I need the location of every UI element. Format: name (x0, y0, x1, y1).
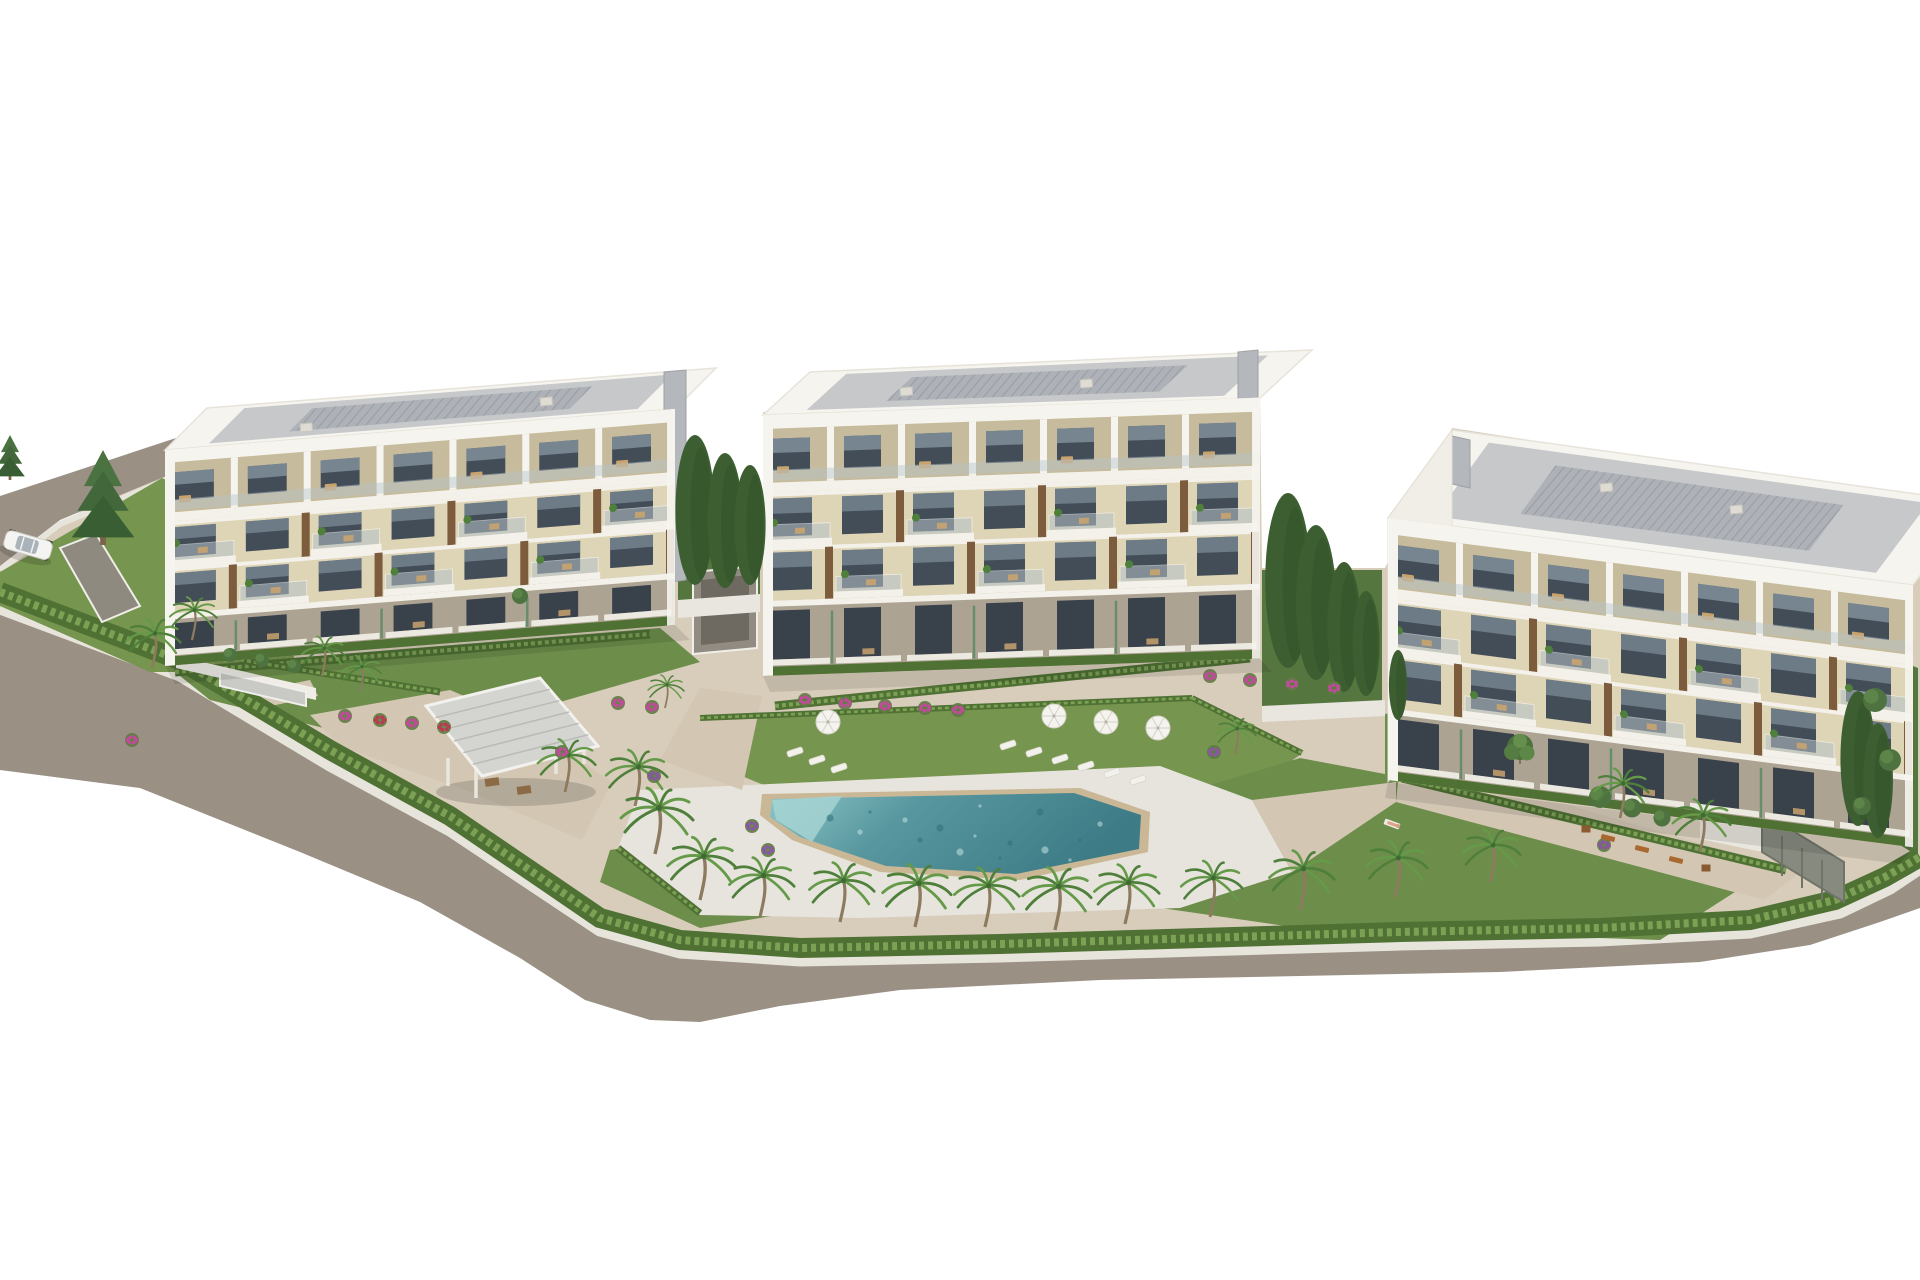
parasol (1042, 704, 1066, 728)
bush (1623, 799, 1642, 818)
facade (165, 409, 675, 666)
flower-cluster (1207, 745, 1221, 759)
stair-core (1452, 436, 1470, 488)
parasol (1094, 710, 1118, 734)
flower-cluster (1203, 669, 1217, 683)
flower-cluster (125, 733, 139, 747)
bush (287, 659, 301, 673)
roof-vent (1730, 505, 1743, 514)
flower-cluster (373, 713, 387, 727)
flower-cluster (1243, 673, 1257, 687)
bush (1654, 810, 1671, 827)
building-right (1385, 430, 1920, 864)
bush (223, 648, 237, 662)
parasol (816, 710, 840, 734)
flower-cluster (918, 701, 932, 715)
flower-cluster (951, 703, 965, 717)
render-root (0, 0, 1920, 1280)
bush (512, 588, 528, 604)
bush (1879, 749, 1901, 771)
flower-cluster (761, 843, 775, 857)
planter (1582, 826, 1591, 833)
cypress-tree (734, 465, 765, 585)
building-middle (763, 350, 1312, 692)
roof-vent (900, 387, 913, 396)
flower-cluster (647, 769, 661, 783)
bush (1863, 688, 1887, 712)
flower-cluster (838, 696, 852, 710)
flower-cluster (1327, 681, 1341, 695)
cypress-tree (1863, 723, 1893, 838)
flower-cluster (338, 709, 352, 723)
stair-core (1238, 350, 1258, 406)
flower-cluster (555, 745, 569, 759)
roof-vent (1600, 483, 1613, 492)
roof-vent (540, 397, 553, 406)
planter (1702, 865, 1711, 872)
facade (763, 398, 1260, 676)
flower-cluster (745, 819, 759, 833)
architectural-rendering-view (0, 0, 1920, 1280)
flower-cluster (645, 700, 659, 714)
cypress-tree (1352, 591, 1379, 696)
bush (1853, 797, 1871, 815)
flower-cluster (437, 720, 451, 734)
flower-cluster (1285, 677, 1299, 691)
building-left (165, 368, 716, 684)
parasol (1146, 716, 1170, 740)
cypress-tree (1389, 650, 1407, 720)
roof-vent (300, 423, 313, 432)
flower-cluster (798, 693, 812, 707)
bush (255, 653, 269, 667)
roof-vent (1080, 379, 1093, 388)
flower-cluster (878, 699, 892, 713)
flower-cluster (611, 696, 625, 710)
flower-cluster (405, 716, 419, 730)
